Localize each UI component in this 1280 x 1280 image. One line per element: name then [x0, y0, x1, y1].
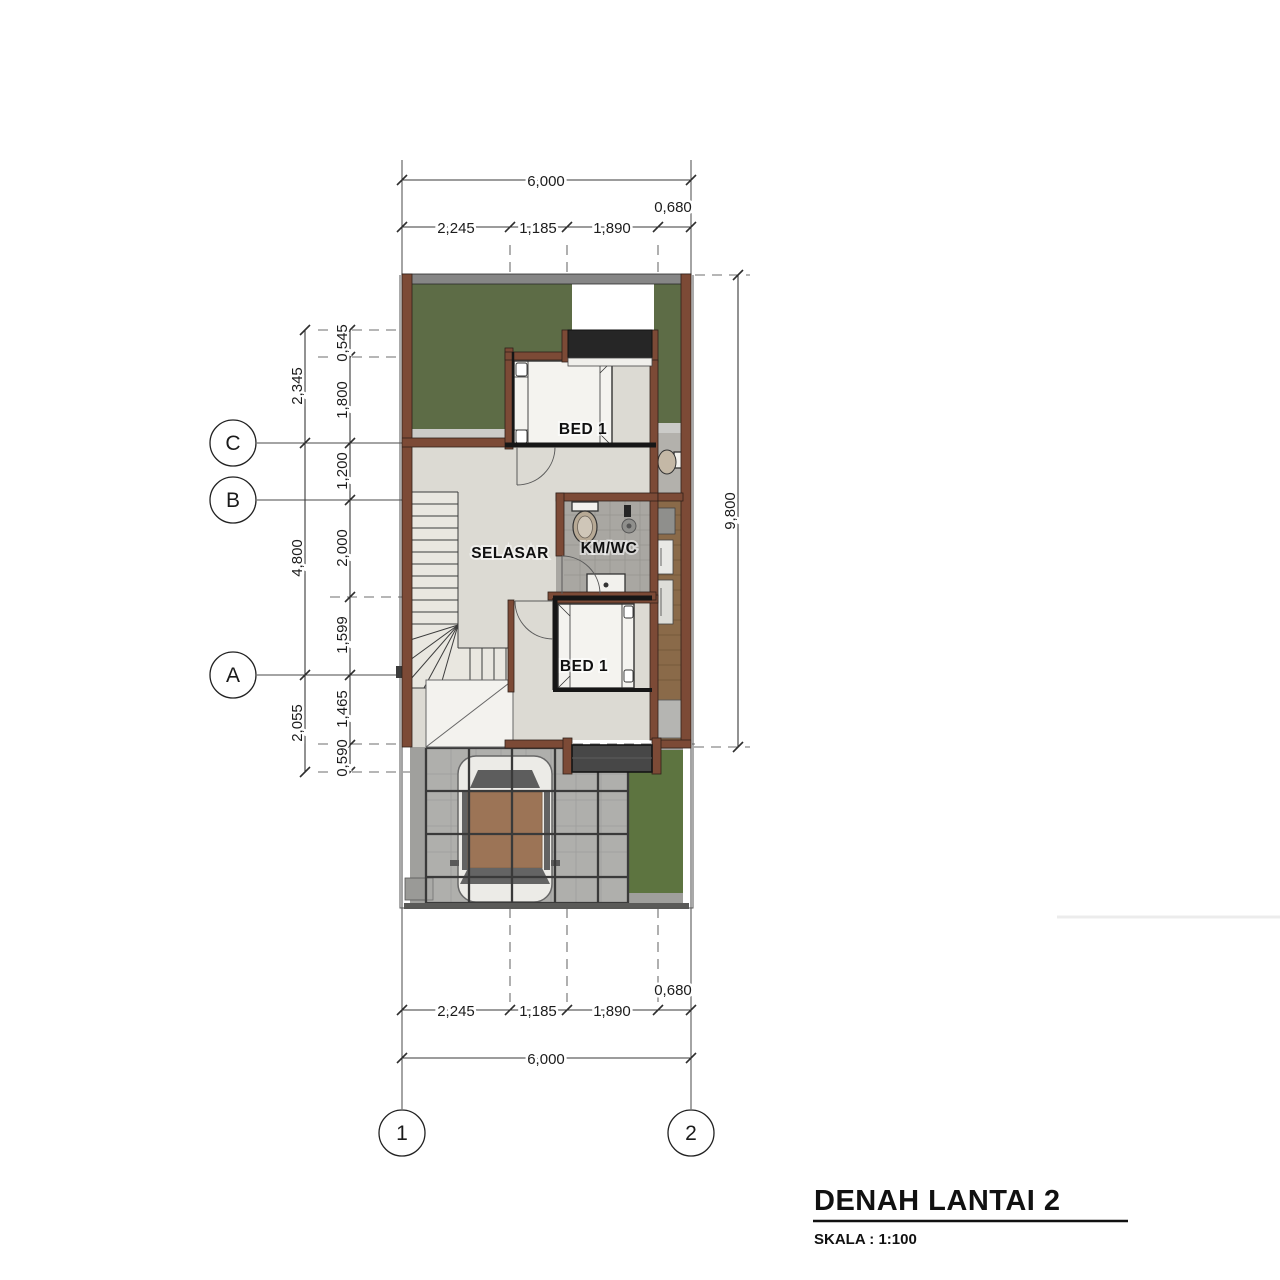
- stair-floor: [410, 492, 458, 688]
- pillow: [516, 363, 527, 376]
- deck-appliances: [657, 508, 675, 624]
- wall-right-outer: [681, 274, 691, 747]
- dim-top-total: 6,000: [527, 173, 565, 190]
- wall-corridor-left: [508, 600, 514, 692]
- pillow: [624, 606, 633, 618]
- label-bed-bottom: BED 1: [560, 658, 608, 675]
- floor-plan-drawing: BED 1 BED 1 SELASAR KM/WC 6,000 2,245 1,…: [0, 0, 1280, 1280]
- dim-top-seg2: 1,185: [519, 220, 557, 237]
- wall-service-strip: [650, 360, 658, 740]
- dim-bottom-seg3: 1,890: [593, 1003, 631, 1020]
- dim-bottom-offset: 0,680: [654, 982, 692, 999]
- sidewalk-strip-left: [410, 429, 513, 439]
- grid-label-b: B: [226, 489, 240, 512]
- dim-left-2000: 2,000: [334, 529, 351, 567]
- window-sill-top: [568, 358, 652, 366]
- dim-right-9800: 9,800: [722, 492, 739, 530]
- wall-wc-deck-divider: [658, 493, 683, 501]
- drawing-scale: SKALA : 1:100: [814, 1231, 917, 1248]
- shower-head: [624, 505, 631, 517]
- dim-left-1599: 1,599: [334, 616, 351, 654]
- roof-garden-top-left: [410, 283, 512, 429]
- pillow: [624, 670, 633, 682]
- label-selasar: SELASAR: [471, 545, 549, 562]
- dim-left-0590: 0,590: [334, 739, 351, 777]
- wall-kmwc-top: [556, 493, 658, 501]
- wall-selasar-top: [402, 438, 513, 447]
- grid-label-c: C: [225, 432, 240, 455]
- dim-left-0545: 0,545: [334, 324, 351, 362]
- toilet-kmwc: [572, 502, 598, 543]
- dim-left-2345: 2,345: [289, 367, 306, 405]
- dim-top-seg1: 2,245: [437, 220, 475, 237]
- bay-post-right: [652, 738, 661, 774]
- shower-drain-center: [627, 524, 632, 529]
- grid-label-2: 2: [685, 1122, 697, 1145]
- wall-kmwc-left: [556, 493, 564, 556]
- bay-post-left: [563, 738, 572, 774]
- label-kmwc: KM/WC: [581, 540, 638, 557]
- bed-bottom: [558, 604, 634, 688]
- dim-top-seg3: 1,890: [593, 220, 631, 237]
- floor-plan-sheet: BED 1 BED 1 SELASAR KM/WC 6,000 2,245 1,…: [0, 0, 1280, 1280]
- drawing-title: DENAH LANTAI 2: [814, 1185, 1061, 1217]
- dim-left-1465: 1,465: [334, 690, 351, 728]
- dim-left-2055: 2,055: [289, 704, 306, 742]
- window-planter-top: [568, 330, 652, 358]
- dim-bottom-seg2: 1,185: [519, 1003, 557, 1020]
- dim-left-4800: 4,800: [289, 539, 306, 577]
- wall-left-outer: [402, 274, 412, 747]
- grid-label-1: 1: [396, 1122, 408, 1145]
- label-bed-top: BED 1: [559, 421, 607, 438]
- dim-left-1200: 1,200: [334, 452, 351, 490]
- dim-bottom-seg1: 2,245: [437, 1003, 475, 1020]
- dim-bottom-total: 6,000: [527, 1051, 565, 1068]
- wall-bottom-left-seg: [505, 740, 567, 748]
- parapet-top: [402, 274, 691, 284]
- dim-left-1800: 1,800: [334, 381, 351, 419]
- dim-top-offset: 0,680: [654, 199, 692, 216]
- pillow: [516, 430, 527, 443]
- grid-label-a: A: [226, 664, 240, 687]
- deck-window: [656, 700, 683, 738]
